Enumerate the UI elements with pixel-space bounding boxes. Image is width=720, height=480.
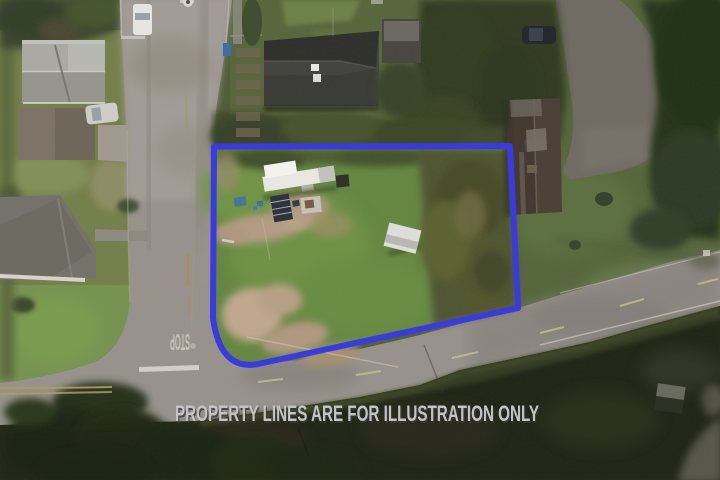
svg-text:PROPERTY LINES ARE FOR ILLUSTR: PROPERTY LINES ARE FOR ILLUSTRATION ONLY — [175, 401, 539, 426]
